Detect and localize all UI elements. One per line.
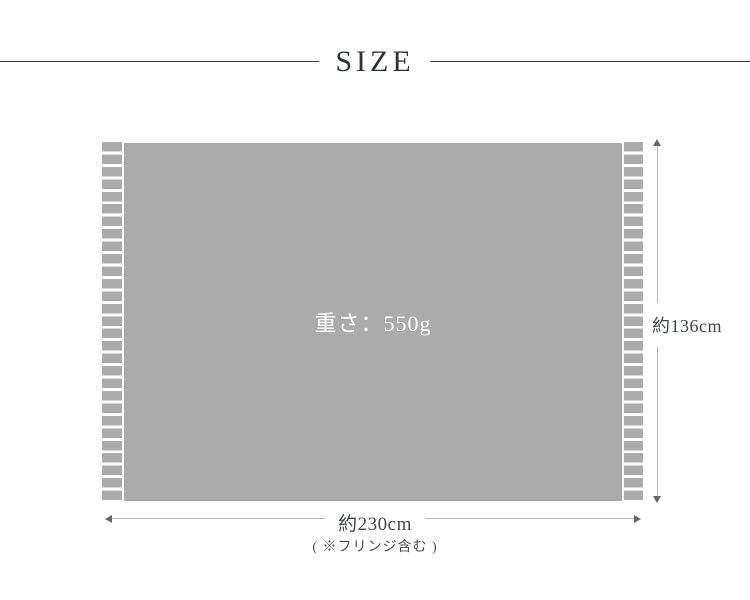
arrow-down-icon [653,496,661,503]
arrow-left-icon [105,515,112,523]
right-fringe [624,142,643,503]
width-note: ( ※フリンジ含む ) [312,536,437,556]
width-label: 約230cm [325,507,425,538]
product-rectangle: 重さ：550g [102,142,643,504]
page-title: SIZE [319,44,430,80]
arrow-right-icon [634,515,641,523]
arrow-up-icon [653,139,661,146]
height-label: 約136cm [650,303,722,347]
weight-label: 重さ：550g [314,306,431,338]
size-diagram-page: SIZE 重さ：550g 約136cm 約230cm ( ※フリンジ含む ) [0,0,750,600]
left-fringe [102,142,122,503]
product-body: 重さ：550g [124,143,622,501]
